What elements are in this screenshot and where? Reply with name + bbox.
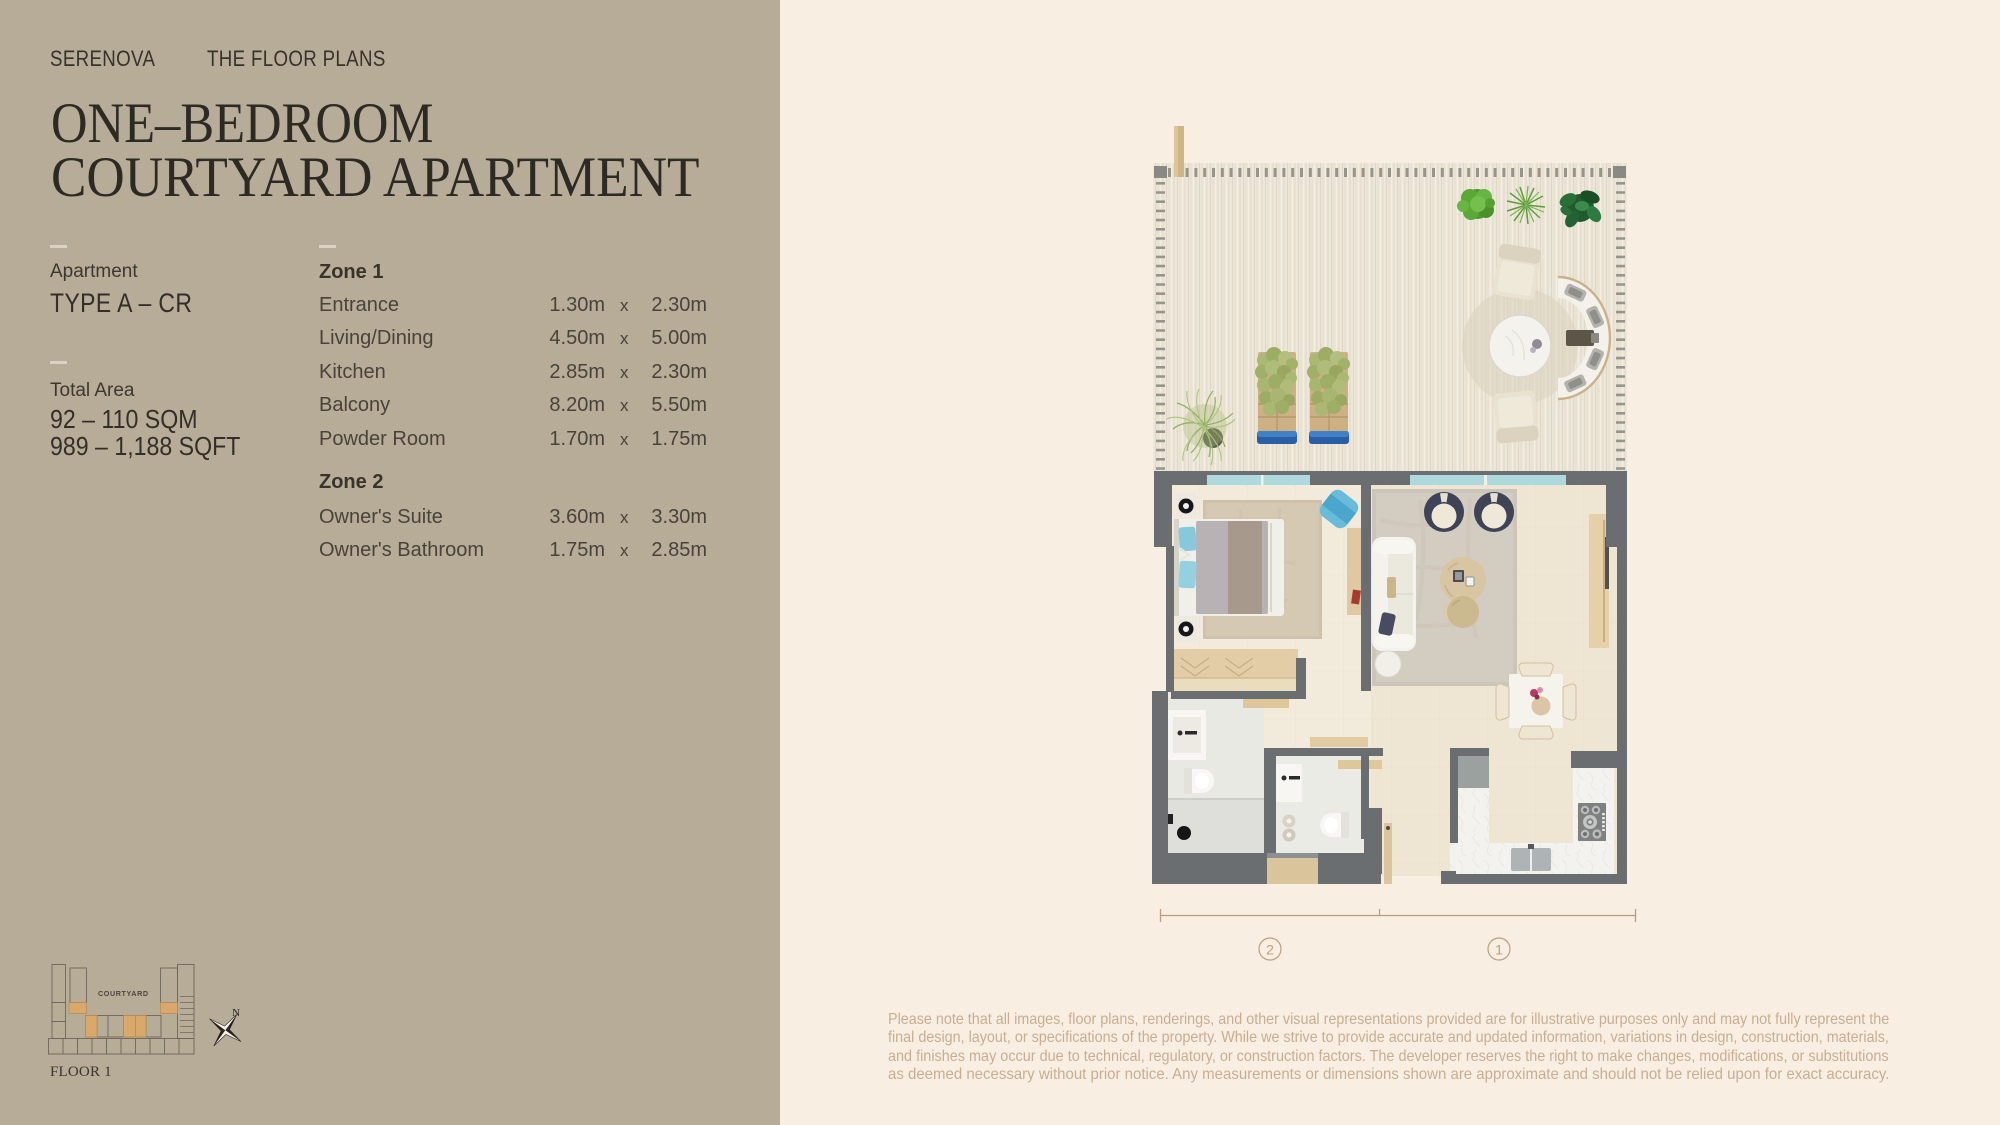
svg-text:COURTYARD: COURTYARD <box>98 989 149 998</box>
svg-text:FLOOR 1: FLOOR 1 <box>50 1064 112 1080</box>
svg-text:1: 1 <box>1495 942 1503 958</box>
svg-text:N: N <box>232 1007 240 1019</box>
svg-text:2: 2 <box>1266 942 1274 958</box>
